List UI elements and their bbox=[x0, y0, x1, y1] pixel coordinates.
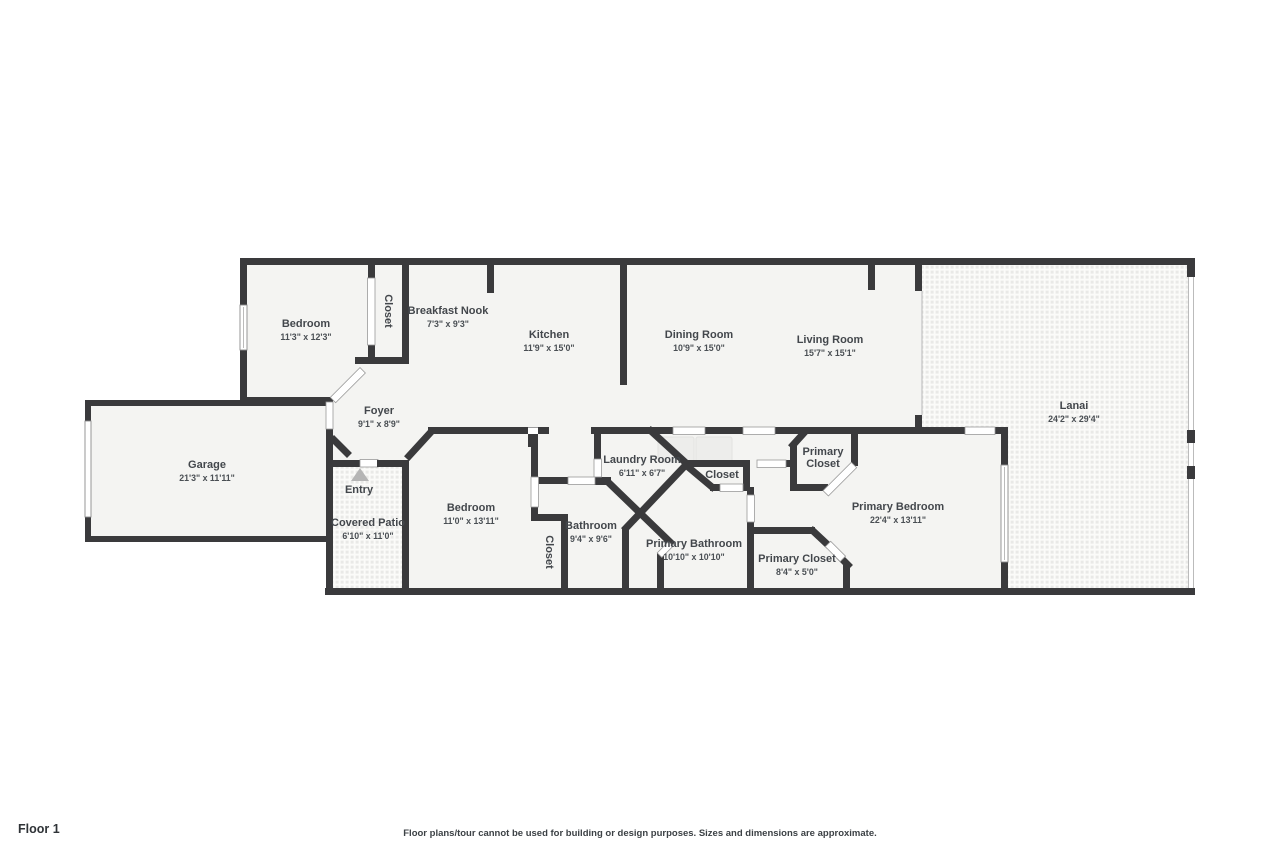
lanai-screen-wall bbox=[1187, 265, 1195, 588]
room-label-garage: Garage bbox=[188, 459, 226, 471]
disclaimer-text: Floor plans/tour cannot be used for buil… bbox=[0, 828, 1280, 839]
room-dims-garage: 21'3" x 11'11" bbox=[179, 473, 235, 483]
room-dims-laundry-room: 6'11" x 6'7" bbox=[619, 468, 665, 478]
room-label-primary-closet-2: Primary Closet bbox=[758, 553, 836, 565]
room-label-bedroom-2: Bedroom bbox=[447, 502, 496, 514]
room-label-bedroom-1: Bedroom bbox=[282, 318, 331, 330]
room-dims-living-room: 15'7" x 15'1" bbox=[804, 348, 856, 358]
floor-plan-page: Bedroom 11'3" x 12'3" Closet Breakfast N… bbox=[0, 0, 1280, 853]
room-label-bathroom: Bathroom bbox=[565, 520, 617, 532]
room-label-covered-patio: Covered Patio bbox=[331, 517, 405, 529]
room-dims-bedroom-1: 11'3" x 12'3" bbox=[280, 332, 331, 342]
room-label-entry: Entry bbox=[345, 484, 374, 496]
floor-plan-svg: Bedroom 11'3" x 12'3" Closet Breakfast N… bbox=[0, 0, 1280, 853]
room-label-breakfast-nook: Breakfast Nook bbox=[408, 305, 490, 317]
room-dims-bedroom-2: 11'0" x 13'11" bbox=[443, 516, 499, 526]
room-label-closet-3: Closet bbox=[705, 469, 739, 481]
room-dims-foyer: 9'1" x 8'9" bbox=[358, 419, 400, 429]
room-dims-covered-patio: 6'10" x 11'0" bbox=[342, 531, 393, 541]
room-label-laundry-room: Laundry Room bbox=[603, 454, 681, 466]
garage-door bbox=[85, 421, 91, 517]
room-label-primary-closet-1-line1: Primary bbox=[803, 446, 845, 458]
room-label-lanai: Lanai bbox=[1060, 400, 1089, 412]
room-label-foyer: Foyer bbox=[364, 405, 395, 417]
room-dims-lanai: 24'2" x 29'4" bbox=[1048, 414, 1100, 424]
room-label-primary-bathroom: Primary Bathroom bbox=[646, 538, 742, 550]
room-label-primary-bedroom: Primary Bedroom bbox=[852, 501, 945, 513]
room-dims-breakfast-nook: 7'3" x 9'3" bbox=[427, 319, 469, 329]
room-dims-primary-bathroom: 10'10" x 10'10" bbox=[663, 552, 724, 562]
room-dims-dining-room: 10'9" x 15'0" bbox=[673, 343, 725, 353]
room-dims-bathroom: 9'4" x 9'6" bbox=[570, 534, 612, 544]
room-label-closet-2: Closet bbox=[543, 535, 555, 569]
room-label-primary-closet-1-line2: Closet bbox=[806, 458, 840, 470]
room-dims-primary-closet-2: 8'4" x 5'0" bbox=[776, 567, 818, 577]
front-door bbox=[360, 460, 387, 468]
room-label-kitchen: Kitchen bbox=[529, 329, 570, 341]
room-dims-kitchen: 11'9" x 15'0" bbox=[523, 343, 574, 353]
room-label-closet-1: Closet bbox=[382, 294, 394, 328]
room-label-dining-room: Dining Room bbox=[665, 329, 734, 341]
room-dims-primary-bedroom: 22'4" x 13'11" bbox=[870, 515, 926, 525]
room-label-living-room: Living Room bbox=[797, 334, 864, 346]
